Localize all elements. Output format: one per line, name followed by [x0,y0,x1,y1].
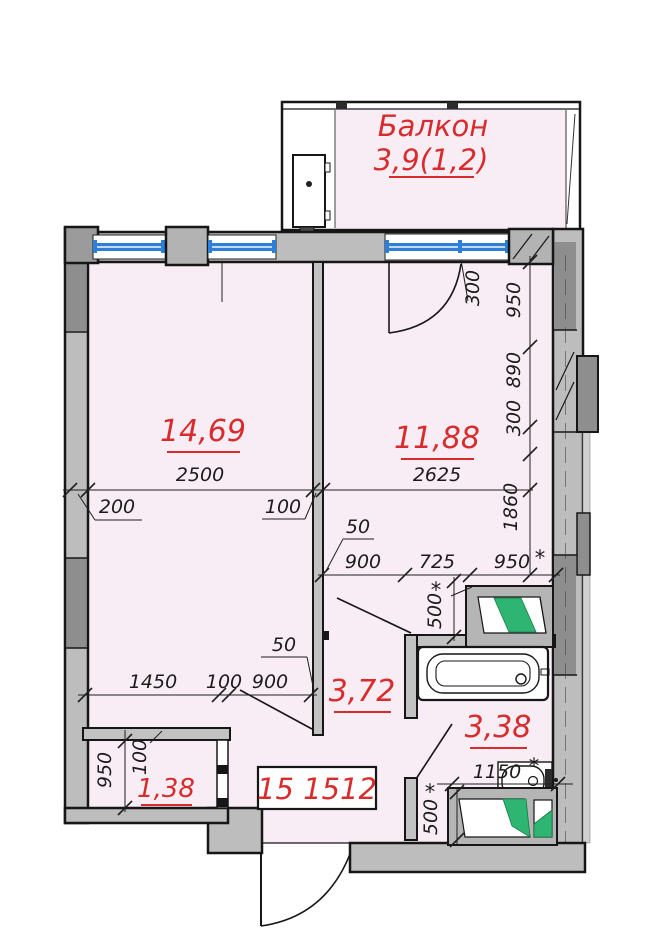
balcony-label: Балкон [378,109,488,143]
wall-bath-west-lower [405,778,417,840]
dim-50-top: 50 [346,516,370,538]
partition-main [313,262,323,735]
balcony-rail-post [336,102,347,109]
wall-bottom-right [350,843,585,872]
dim-900-door: 900 [252,671,288,693]
dim-1450: 1450 [129,671,177,693]
toilet-valve-dot [554,778,558,782]
ac-unit-bracket [325,163,330,172]
dim-100-wc: 100 [129,739,151,775]
window-frame-cap [458,240,462,253]
dim-2500: 2500 [176,464,224,486]
dim-1860: 1860 [500,483,522,531]
dim-950-bath: 950 [494,551,530,573]
dim-100-wall: 100 [206,671,242,693]
dim-950-v: 950 [503,282,525,318]
balcony-rail-post [447,102,458,109]
plan-code: 15 1512 [257,772,377,806]
dim-star: * [425,780,436,804]
window-pier-column [166,227,208,265]
wall-pilaster [577,356,598,432]
dim-1150: 1150 [473,761,521,783]
window-frame-cap [93,240,97,253]
wall-left-dark-segment [67,558,87,648]
dim-725: 725 [419,551,455,573]
door-jamb [217,798,228,807]
dim-200: 200 [99,496,135,518]
wall-wc-top [83,728,230,740]
room1-area: 14,69 [160,414,246,449]
door-stop-notch [323,631,329,640]
bathtub [418,647,549,700]
wall-pilaster-small [577,513,590,575]
dim-100: 100 [265,496,301,518]
dim-300-door: 300 [462,270,484,306]
balcony-door-glazing-line [387,246,507,247]
window-glazing-line [95,246,164,247]
window-frame-cap [208,240,212,253]
ac-unit-dot [306,181,312,187]
dim-500-bot: 500 [420,799,442,835]
room2-area: 11,88 [394,421,480,456]
dim-300-v: 300 [503,400,525,436]
ac-unit-bracket [325,211,330,220]
hall-area: 3,72 [329,674,396,709]
dim-2625: 2625 [413,464,461,486]
bath-area: 3,38 [465,710,532,745]
dim-950-wc: 950 [94,752,116,788]
floorplan-drawing: Балкон 3,9(1,2) [0,0,650,950]
dim-890: 890 [503,352,525,388]
dim-50-bot: 50 [272,634,296,656]
door-jamb [217,765,228,774]
dim-star: * [535,546,546,570]
window-frame-cap [385,240,389,253]
ac-unit-body [293,155,325,227]
dim-900-hall: 900 [345,551,381,573]
window-frame-cap [272,240,276,253]
floorplan-page: Балкон 3,9(1,2) [0,0,650,950]
wc-area: 1,38 [137,774,195,804]
balcony-area: 3,9(1,2) [374,143,489,177]
window-frame-cap [161,240,165,253]
balcony: Балкон 3,9(1,2) [282,102,580,234]
wall-outer-strip [583,575,590,843]
wall-bath-west-upper [405,635,417,718]
dim-star: * [431,578,442,602]
wall-outer-strip [583,432,590,513]
window-glazing-line [210,246,274,247]
ac-unit [293,155,330,234]
wall-bottom-left [65,808,228,823]
dim-star: * [529,754,540,778]
bathtub-drain [516,674,526,684]
